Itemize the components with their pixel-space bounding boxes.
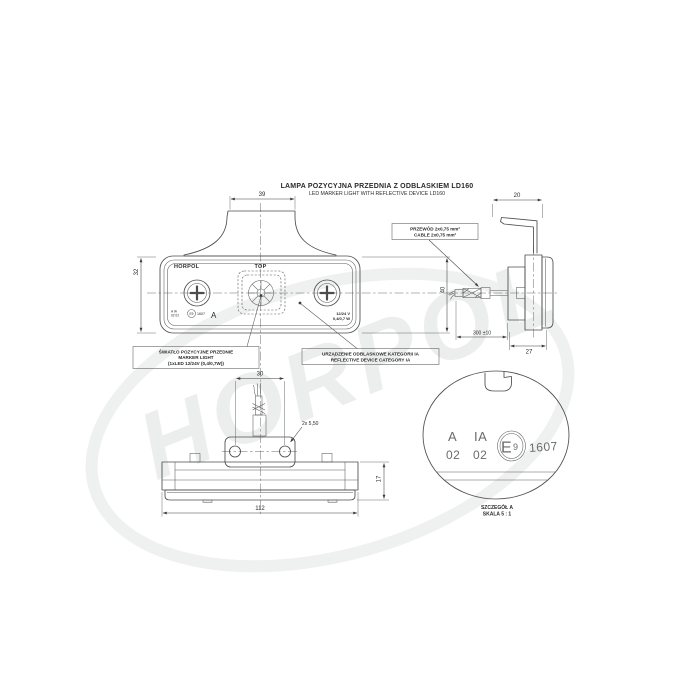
detail-emark-e: E [501,440,512,457]
dim-40: 40 [441,286,447,293]
callout-light-l2: MARKER LIGHT [178,355,213,360]
dim-20: 20 [514,193,521,199]
detail-cat-a: A [448,429,457,444]
drawing-page: HORPOL LAMPA POZYCYJNA PRZEDNIA Z ODBLAS… [0,0,700,700]
bottom-lens-strip [165,490,355,500]
detail-cat-ia: IA [474,429,487,444]
callout-reflex-l1: URZĄDZENIE ODBLASKOWE KATEGORII IA [322,352,420,357]
callout-light-l3: (1xLED 12/24V (0,4/0,7W)) [168,361,224,366]
dimension-side-bracket: 20 [493,193,543,218]
detail-cat-a-sub: 02 [446,448,460,462]
dim-39: 39 [259,192,266,198]
lens-fresnel-icon [249,281,274,306]
detail-emark-9: 9 [513,442,518,452]
front-bracket-outline [184,211,336,256]
dim-300: 300 ±10 [473,331,491,337]
brand-watermark: HORPOL [57,223,602,618]
detail-caption-pl: SZCZEGÓŁ A [481,503,513,511]
front-homologation-marking: A IA 02 02 E9 1607 [171,310,205,318]
callout-cable-l2: CABLE 2x0,75 mm² [414,233,457,238]
title-pl: LAMPA POZYCYJNA PRZEDNIA Z ODBLASKIEM LD… [281,183,474,190]
dim-27: 27 [526,350,533,356]
dimension-front-left-height: 32 [134,257,156,333]
dim-112: 112 [255,506,265,512]
drawing-title: LAMPA POZYCYJNA PRZEDNIA Z ODBLASKIEM LD… [281,183,474,197]
holes-note-text: 2x 5,50 [302,421,319,427]
brand-label: HORPOL [174,264,200,270]
dim-30: 30 [257,372,264,378]
top-label: TOP [254,264,266,270]
callout-reflex-l2: REFLECTIVE DEVICE CATEGORY IA [331,358,411,363]
detail-approval-number: 1607 [529,439,559,455]
front-body-inner2 [168,264,353,326]
dim-32: 32 [134,268,140,275]
emark-small: E9 [190,312,194,316]
detail-view: A 02 IA 02 E 9 1607 SZCZEGÓŁ A SKALA 5 :… [423,371,569,518]
detail-cat-ia-sub: 02 [473,448,487,462]
callout-cable-l1: PRZEWÓD 2x0,75 mm² [410,225,460,232]
technical-drawing-canvas: HORPOL LAMPA POZYCYJNA PRZEDNIA Z ODBLAS… [0,0,700,700]
callout-light-l1: ŚWIATŁO POZYCYJNE PRZEDNIE [159,349,233,355]
detail-marker-letter: A [211,311,217,320]
detail-scale: SKALA 5 : 1 [483,512,512,518]
approval-number-small: 1607 [197,312,205,316]
dimension-front-width: 39 [230,192,295,210]
detail-top-notch [485,372,512,392]
marking-row2: 02 02 [171,314,179,318]
dimension-bottom-width: 112 [162,492,358,517]
title-en: LED MARKER LIGHT WITH REFLECTIVE DEVICE … [309,191,445,197]
wattage-label: 0,4/0,7 W [333,316,350,321]
dimension-bottom-height: 17 [357,462,389,500]
dim-17: 17 [377,475,383,482]
